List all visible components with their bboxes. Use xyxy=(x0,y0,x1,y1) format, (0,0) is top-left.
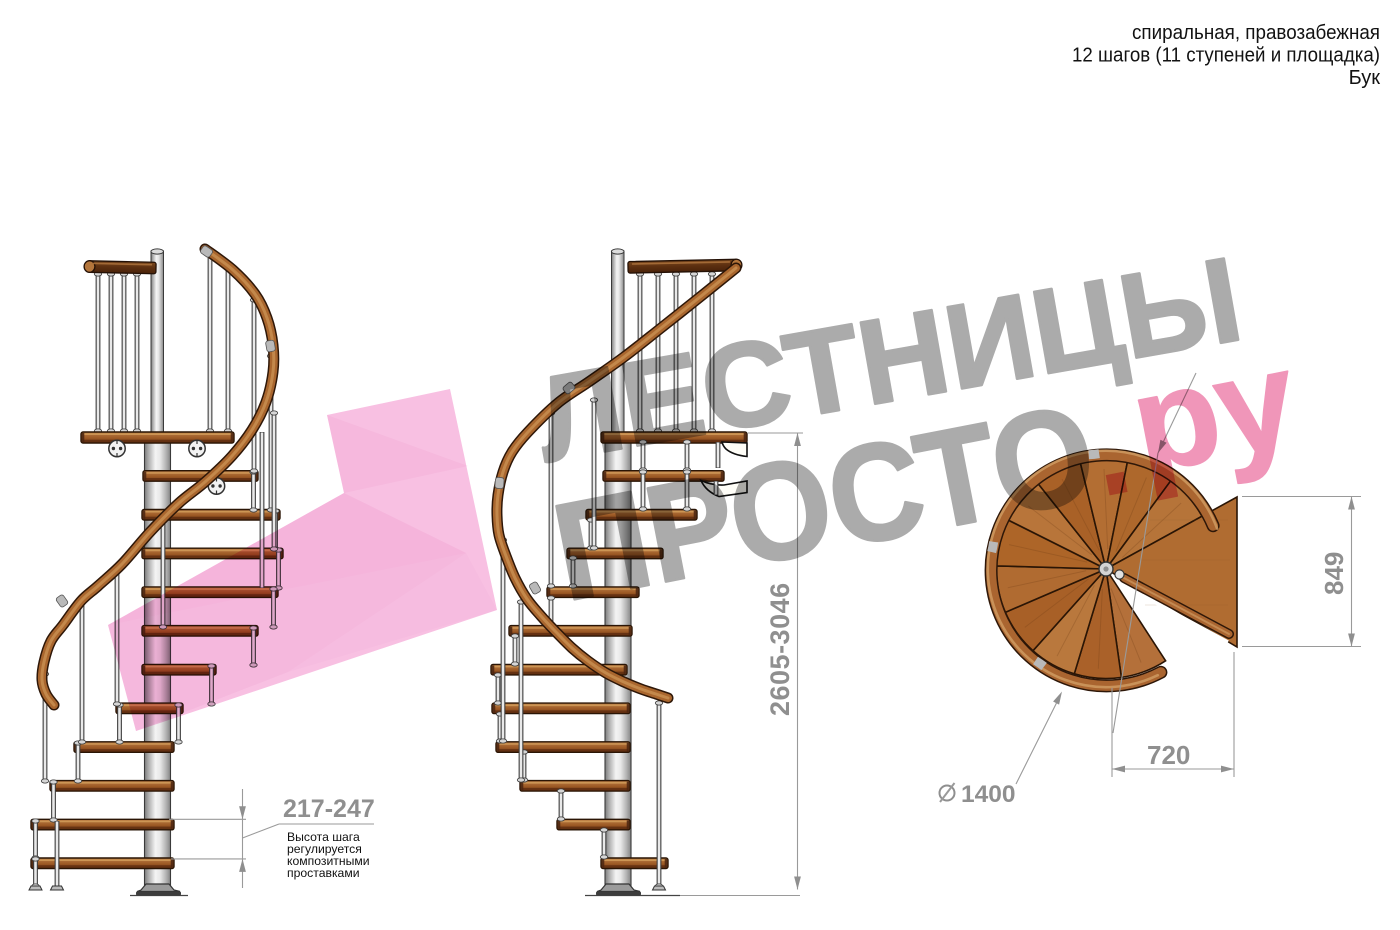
svg-text:849: 849 xyxy=(1319,552,1349,595)
svg-text:720: 720 xyxy=(1147,740,1190,770)
svg-text:217-247: 217-247 xyxy=(283,795,375,823)
svg-text:12 шагов (11 ступеней и площад: 12 шагов (11 ступеней и площадка) xyxy=(1072,45,1380,67)
svg-text:2605-3046: 2605-3046 xyxy=(765,582,795,716)
svg-text:1400: 1400 xyxy=(961,781,1016,808)
svg-text:проставками: проставками xyxy=(287,866,360,880)
svg-text:спиральная, правозабежная: спиральная, правозабежная xyxy=(1132,22,1380,44)
svg-text:Бук: Бук xyxy=(1349,67,1381,89)
